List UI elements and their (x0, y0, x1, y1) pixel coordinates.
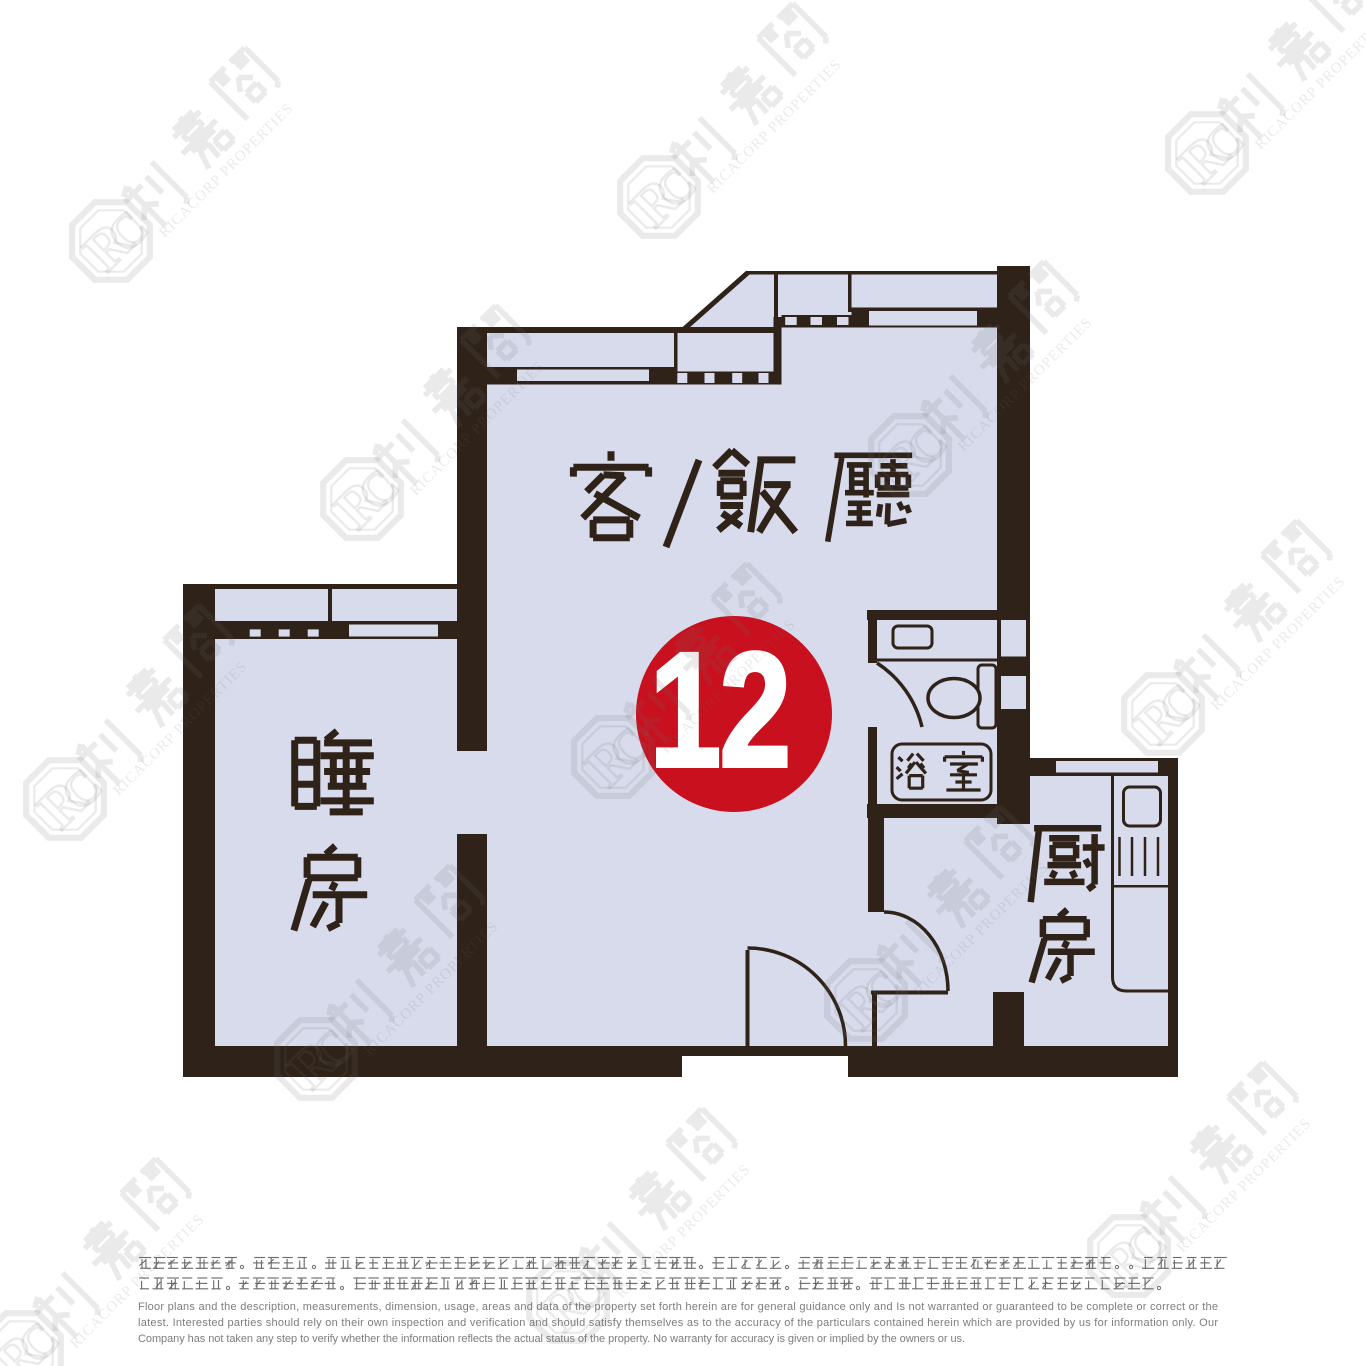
svg-text:latest. Interested parties sho: latest. Interested parties should rely o… (138, 1317, 1218, 1329)
svg-text:Floor plans and the descriptio: Floor plans and the description, measure… (138, 1301, 1218, 1313)
